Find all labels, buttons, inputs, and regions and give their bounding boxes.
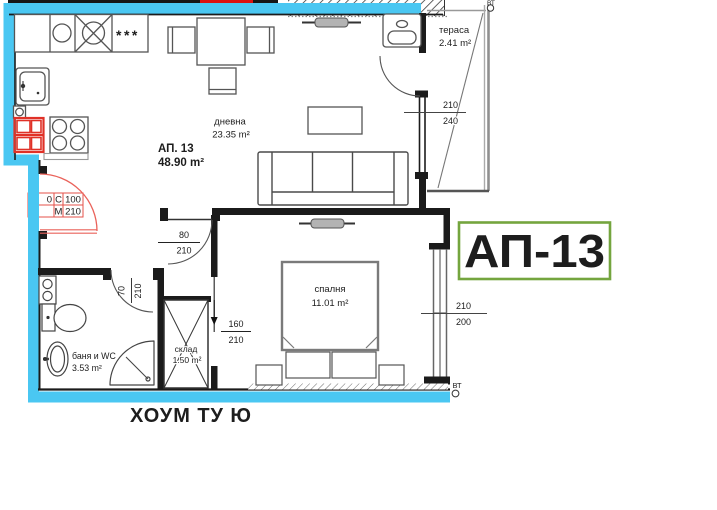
svg-text:210: 210 xyxy=(133,283,143,298)
living-area: 23.35 m² xyxy=(212,130,250,141)
spec-left-partial: 0 xyxy=(47,195,52,206)
dining-table xyxy=(197,18,245,65)
svg-text:210: 210 xyxy=(443,100,458,110)
svg-text:70: 70 xyxy=(117,286,127,296)
svg-text:ВТ: ВТ xyxy=(453,381,463,390)
spec-m-label: M xyxy=(55,207,63,218)
svg-text:210: 210 xyxy=(228,335,243,345)
floor-plan-page: 0 C 100 M 210 xyxy=(0,0,717,510)
apartment-badge: АП-13 xyxy=(459,223,610,280)
nightstand-right xyxy=(379,365,404,385)
coffee-table xyxy=(308,107,362,134)
bedroom-area: 11.01 m² xyxy=(312,298,349,309)
living-label: дневна xyxy=(214,117,246,128)
kitchen-symbol: *** xyxy=(116,27,140,43)
storage-room: склад 1.50 m² xyxy=(164,300,208,388)
apartment-badge-text: АП-13 xyxy=(464,225,605,277)
sofa-icon xyxy=(258,152,408,205)
storage-area: 1.50 m² xyxy=(173,355,202,365)
toilet-icon xyxy=(42,304,86,332)
terrace-label: тераса xyxy=(439,25,470,36)
double-basin-icon xyxy=(39,276,56,304)
svg-text:240: 240 xyxy=(443,116,458,126)
kitchen-sink-icon xyxy=(16,68,49,105)
stove-icon xyxy=(50,117,88,153)
bathroom-label: баня и WC xyxy=(72,351,116,361)
svg-text:210: 210 xyxy=(456,301,471,311)
bedroom-label: спалня xyxy=(314,284,345,295)
wash-basin-unit-icon xyxy=(383,14,421,47)
svg-text:160: 160 xyxy=(228,319,243,329)
storage-label: склад xyxy=(175,344,198,354)
nightstand-left xyxy=(256,365,282,385)
unit-label: АП. 13 xyxy=(158,143,194,155)
terrace-area: 2.41 m² xyxy=(439,38,471,49)
svg-text:80: 80 xyxy=(179,230,189,240)
vent-marker-top: ВТ xyxy=(487,0,495,11)
spec-c-value: 100 xyxy=(65,195,81,206)
bathroom-area: 3.53 m² xyxy=(72,363,102,373)
spec-m-value: 210 xyxy=(65,207,81,218)
watermark-text: ХОУМ ТУ Ю xyxy=(130,404,252,427)
spec-c-label: C xyxy=(55,195,62,206)
floor-plan-svg: 0 C 100 M 210 xyxy=(0,0,717,510)
svg-text:200: 200 xyxy=(456,317,471,327)
unit-area: 48.90 m² xyxy=(158,157,204,169)
svg-text:210: 210 xyxy=(176,246,191,256)
